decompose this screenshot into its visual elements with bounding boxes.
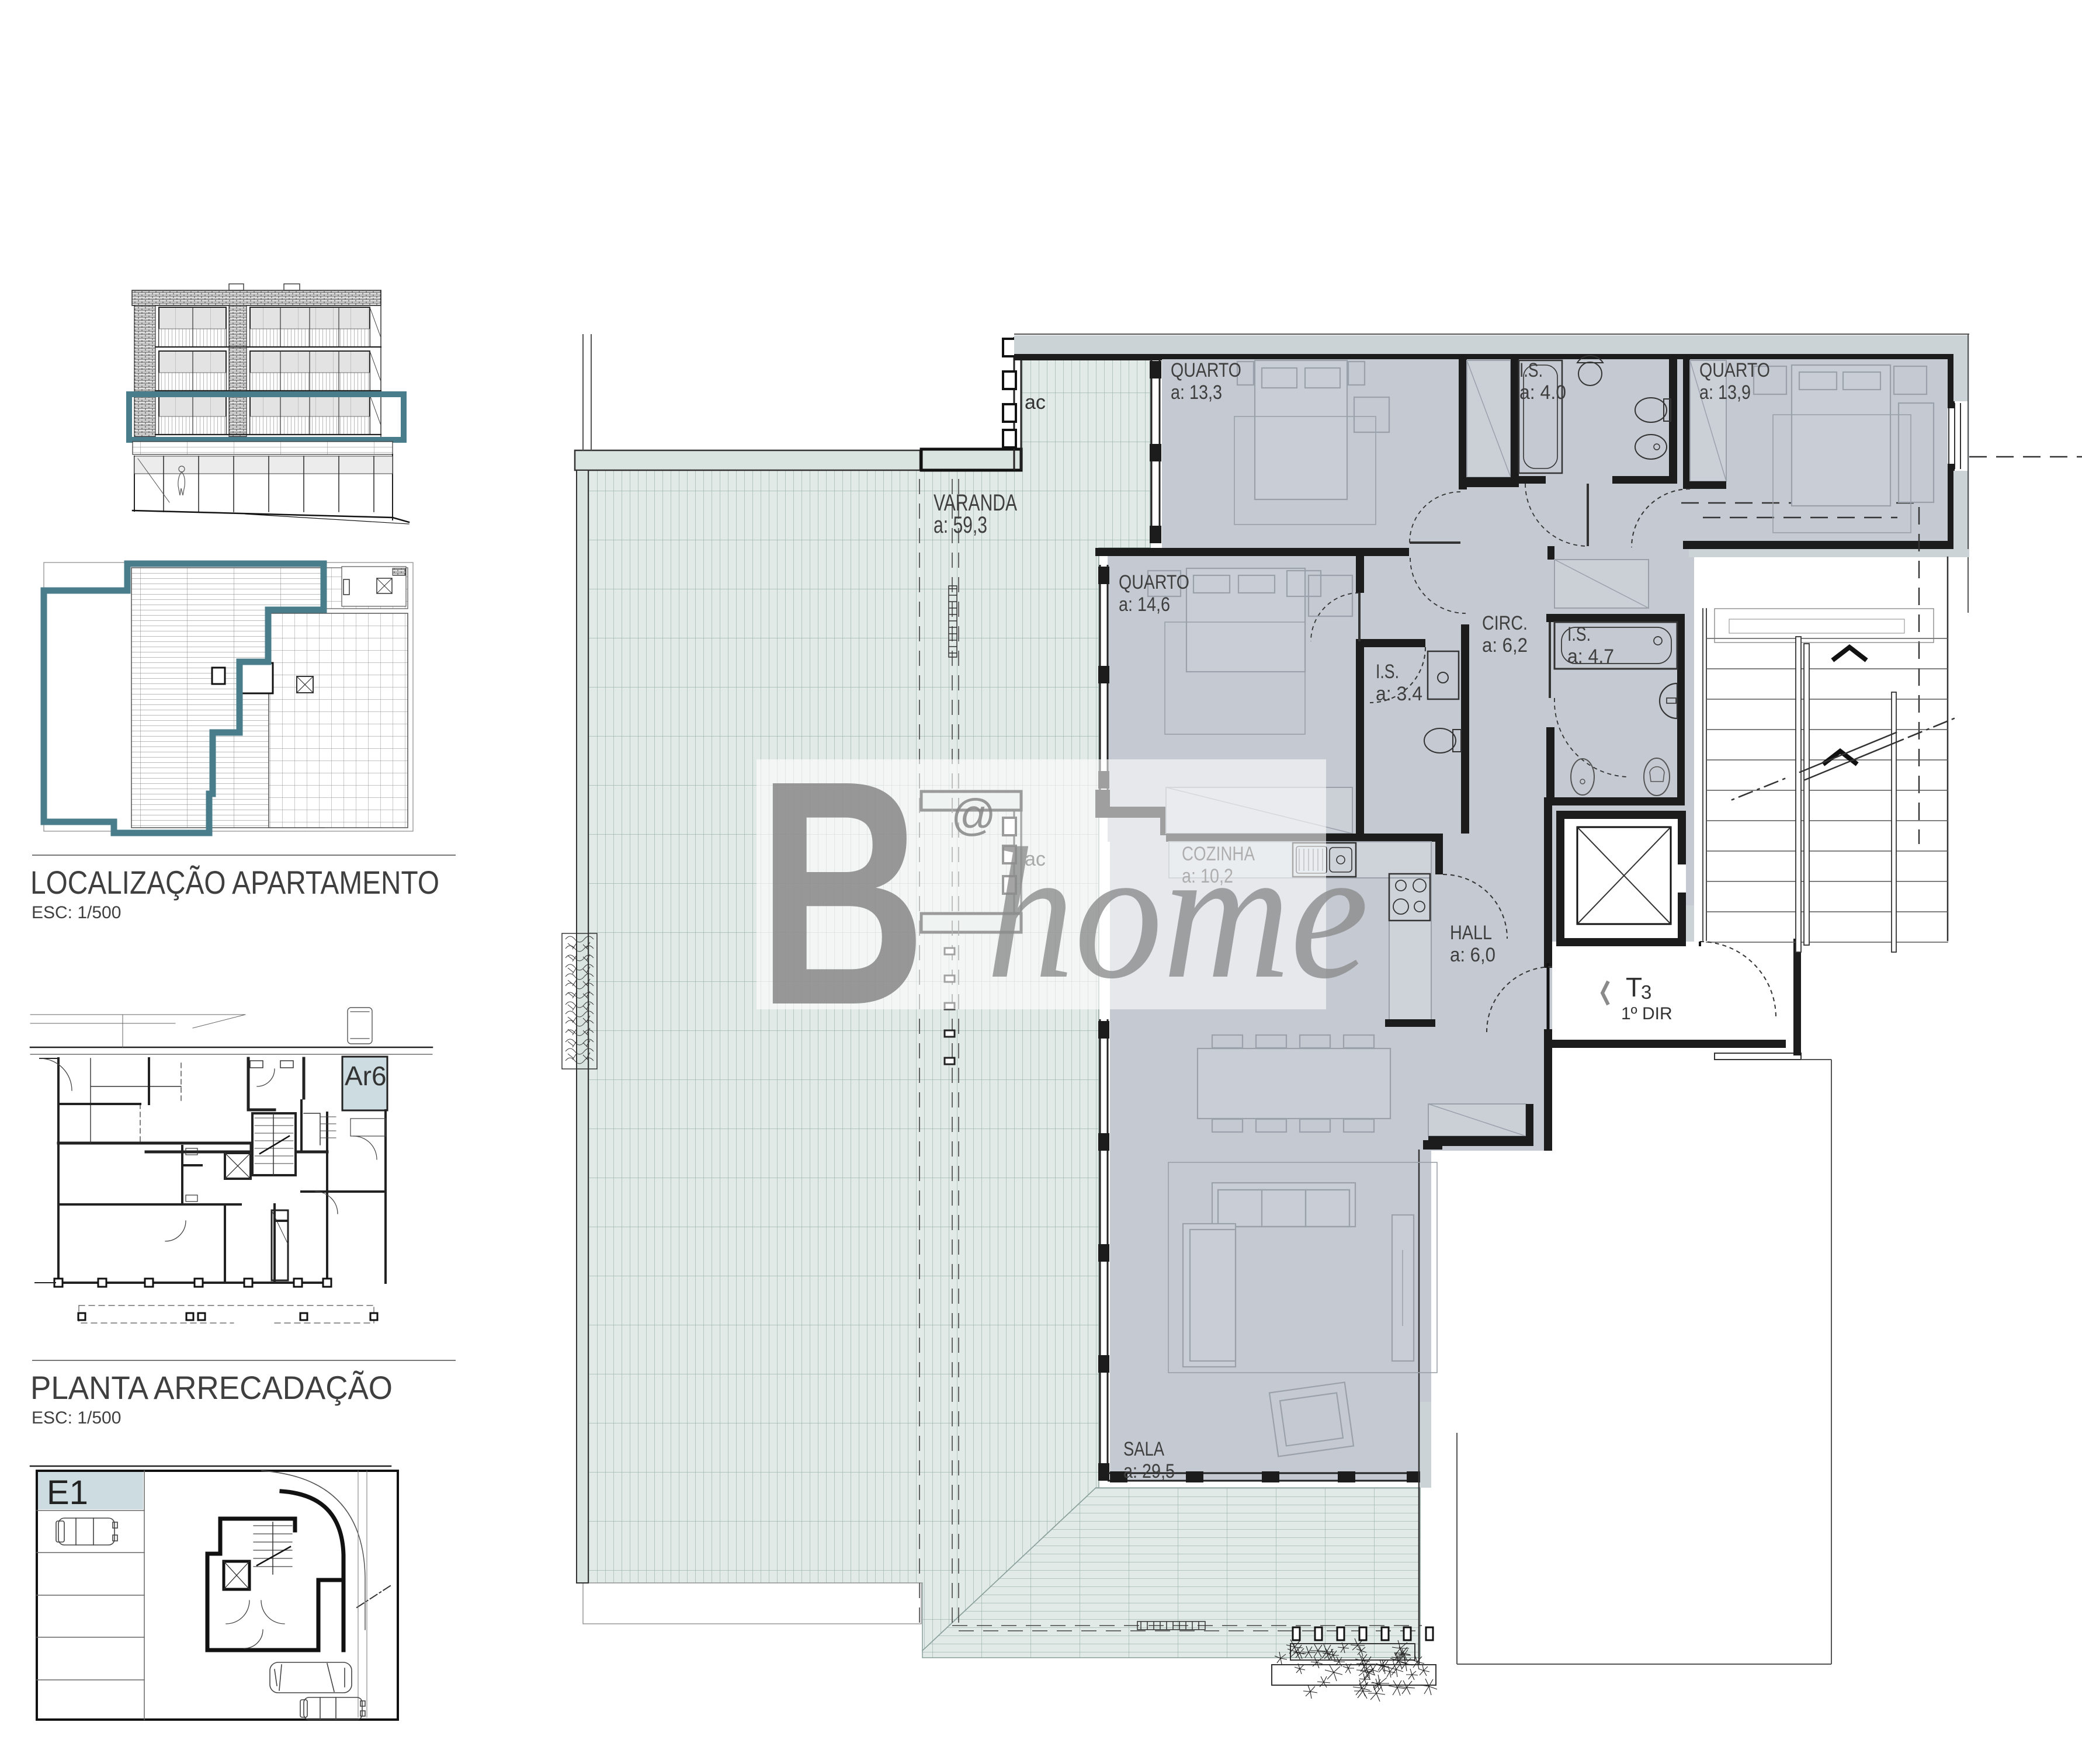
svg-text:a: 13,9: a: 13,9	[1699, 381, 1751, 404]
svg-text:3: 3	[1641, 981, 1651, 1003]
svg-text:a: 6,0: a: 6,0	[1450, 944, 1495, 966]
svg-text:a: 59,3: a: 59,3	[934, 512, 987, 538]
svg-text:QUARTO: QUARTO	[1171, 359, 1241, 381]
svg-text:I.S.: I.S.	[1376, 661, 1399, 683]
svg-text:a: 4.7: a: 4.7	[1567, 645, 1614, 668]
svg-text:E1: E1	[47, 1474, 88, 1512]
svg-text:B: B	[757, 714, 927, 1072]
svg-text:QUARTO: QUARTO	[1699, 359, 1770, 381]
svg-text:a: 29,5: a: 29,5	[1123, 1460, 1175, 1482]
svg-text:ESC: 1/500: ESC: 1/500	[32, 1408, 121, 1428]
svg-text:I.S.: I.S.	[1519, 359, 1543, 381]
svg-text:a: 6,2: a: 6,2	[1482, 634, 1528, 657]
svg-text:QUARTO: QUARTO	[1119, 571, 1189, 593]
svg-text:1º DIR: 1º DIR	[1621, 1004, 1672, 1023]
svg-text:T: T	[1626, 972, 1642, 1002]
svg-text:Ar6: Ar6	[345, 1061, 387, 1091]
svg-text:SALA: SALA	[1123, 1438, 1164, 1460]
svg-text:ac: ac	[1025, 391, 1046, 414]
svg-text:I.S.: I.S.	[1567, 623, 1591, 645]
svg-text:a: 14,6: a: 14,6	[1119, 593, 1170, 616]
svg-text:a: 13,3: a: 13,3	[1171, 381, 1222, 404]
svg-text:a: 4.0: a: 4.0	[1519, 381, 1566, 404]
svg-text:LOCALIZAÇÃO APARTAMENTO: LOCALIZAÇÃO APARTAMENTO	[30, 864, 439, 901]
svg-text:CIRC.: CIRC.	[1482, 612, 1528, 634]
svg-text:HALL: HALL	[1450, 922, 1492, 944]
svg-text:ESC: 1/500: ESC: 1/500	[32, 903, 121, 922]
svg-text:a: 3.4: a: 3.4	[1376, 683, 1422, 705]
svg-text:PLANTA ARRECADAÇÃO: PLANTA ARRECADAÇÃO	[30, 1369, 393, 1406]
svg-text:home: home	[986, 809, 1369, 1018]
